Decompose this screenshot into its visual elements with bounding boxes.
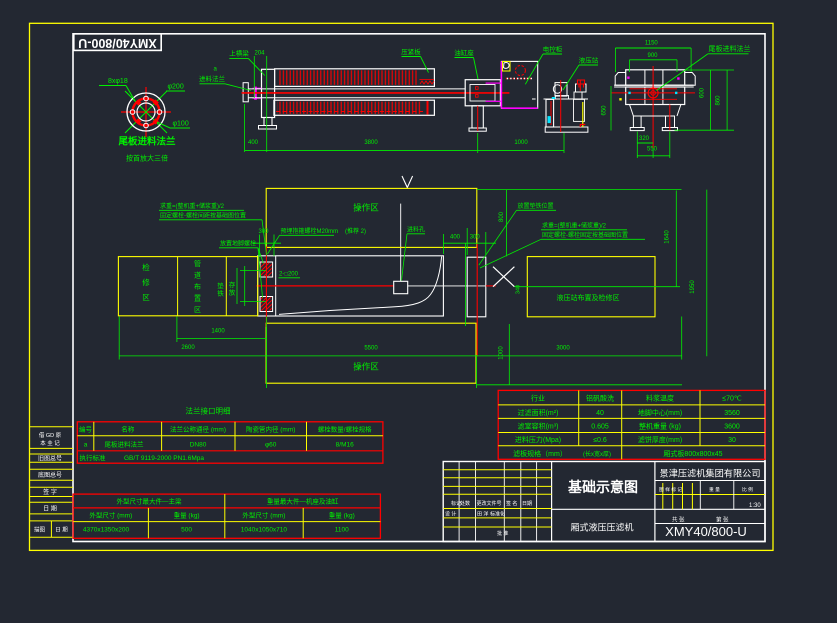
svg-text:压紧板: 压紧板 — [401, 47, 421, 56]
svg-text:500: 500 — [181, 527, 192, 534]
svg-text:更改文件号: 更改文件号 — [477, 500, 502, 507]
svg-text:1950: 1950 — [690, 280, 696, 294]
svg-text:图 样 标 记: 图 样 标 记 — [659, 486, 682, 493]
svg-text:操作区: 操作区 — [353, 362, 379, 372]
svg-text:≤0.6: ≤0.6 — [593, 437, 607, 444]
svg-text:XMY40/800-U: XMY40/800-U — [665, 524, 747, 539]
svg-text:厢式板800x800x45: 厢式板800x800x45 — [663, 449, 722, 458]
svg-text:≤70℃: ≤70℃ — [722, 396, 742, 403]
svg-text:300: 300 — [258, 229, 269, 235]
svg-text:按首放大三倍: 按首放大三倍 — [126, 154, 168, 163]
svg-text:过滤面积(m²): 过滤面积(m²) — [518, 408, 559, 417]
svg-text:液压站: 液压站 — [579, 56, 599, 65]
svg-text:螺栓数量/螺栓规格: 螺栓数量/螺栓规格 — [318, 425, 372, 434]
svg-text:1000: 1000 — [499, 346, 505, 360]
svg-text:DN80: DN80 — [190, 442, 207, 449]
svg-text:重 量: 重 量 — [709, 486, 720, 493]
svg-text:铁: 铁 — [217, 289, 224, 298]
svg-text:基础示意图: 基础示意图 — [568, 479, 638, 495]
svg-text:电控柜: 电控柜 — [543, 45, 563, 54]
svg-text:本 圭 记: 本 圭 记 — [40, 439, 60, 447]
svg-text:重量 (kg): 重量 (kg) — [174, 511, 200, 519]
svg-text:尾板进料法兰: 尾板进料法兰 — [105, 440, 145, 449]
svg-text:1150: 1150 — [645, 41, 659, 47]
svg-text:1400: 1400 — [211, 329, 225, 335]
svg-text:2600: 2600 — [181, 345, 195, 351]
svg-text:尾板进料法兰: 尾板进料法兰 — [117, 136, 176, 148]
svg-text:外型尺寸 (mm): 外型尺寸 (mm) — [89, 510, 132, 519]
svg-text:借 GD 原: 借 GD 原 — [39, 431, 62, 439]
svg-text:40: 40 — [596, 410, 604, 417]
svg-text:放置垫铁位置: 放置垫铁位置 — [518, 202, 554, 210]
svg-text:900: 900 — [647, 53, 658, 59]
svg-text:320: 320 — [639, 136, 650, 142]
svg-text:料浆温度: 料浆温度 — [646, 394, 674, 403]
svg-text:340: 340 — [516, 285, 522, 294]
svg-text:田 洋: 田 洋 — [477, 511, 488, 518]
svg-text:φ200: φ200 — [168, 84, 184, 91]
svg-text:滤饼厚度(mm): 滤饼厚度(mm) — [638, 435, 682, 444]
svg-text:尾板进料法兰: 尾板进料法兰 — [709, 44, 751, 53]
svg-text:日 期: 日 期 — [55, 527, 68, 534]
svg-text:布: 布 — [194, 282, 201, 291]
svg-text:进料压力(Mpa): 进料压力(Mpa) — [515, 435, 561, 444]
svg-text:比 例: 比 例 — [742, 486, 753, 493]
svg-text:存: 存 — [229, 280, 236, 289]
svg-text:检: 检 — [142, 262, 150, 272]
svg-text:地脚中心(mm): 地脚中心(mm) — [638, 408, 682, 417]
svg-text:400: 400 — [450, 235, 461, 241]
svg-text:液压站布置及检修区: 液压站布置及检修区 — [557, 293, 620, 302]
svg-text:处数: 处数 — [460, 500, 470, 507]
svg-text:名称: 名称 — [121, 425, 135, 434]
svg-text:设 计: 设 计 — [445, 511, 456, 518]
svg-text:预埋抱箍螺栓M20mm: 预埋抱箍螺栓M20mm — [281, 227, 339, 235]
svg-text:外型尺寸 (mm): 外型尺寸 (mm) — [242, 510, 285, 519]
svg-text:铝矾酸洗: 铝矾酸洗 — [586, 394, 614, 403]
svg-text:景津压滤机集团有限公司: 景津压滤机集团有限公司 — [659, 468, 760, 479]
svg-text:进料孔: 进料孔 — [407, 226, 425, 234]
svg-text:批 准: 批 准 — [497, 530, 508, 537]
svg-text:日 期: 日 期 — [43, 505, 57, 513]
svg-text:φ60: φ60 — [265, 442, 277, 449]
svg-text:厢式液压压滤机: 厢式液压压滤机 — [570, 522, 633, 533]
svg-text:操作区: 操作区 — [353, 203, 379, 213]
svg-text:a: a — [84, 442, 88, 449]
svg-text:8xφ18: 8xφ18 — [108, 78, 128, 85]
svg-text:法兰接口明细: 法兰接口明细 — [186, 406, 231, 416]
svg-text:行业: 行业 — [531, 394, 545, 403]
svg-text:第 张: 第 张 — [716, 516, 729, 524]
svg-text:(推荐 2): (推荐 2) — [345, 227, 366, 235]
svg-text:XMY40/800-U: XMY40/800-U — [78, 36, 157, 50]
svg-text:旧图总号: 旧图总号 — [38, 455, 62, 463]
svg-text:外型尺寸最大件—主梁: 外型尺寸最大件—主梁 — [117, 497, 183, 506]
svg-text:2-□200: 2-□200 — [279, 272, 299, 278]
svg-text:求重=(整机重+储浆重)/2: 求重=(整机重+储浆重)/2 — [542, 222, 607, 230]
svg-text:3560: 3560 — [724, 410, 740, 417]
svg-text:陶瓷管内径 (mm): 陶瓷管内径 (mm) — [246, 425, 295, 434]
svg-text:执行标准: 执行标准 — [80, 453, 107, 462]
svg-text:550: 550 — [647, 147, 658, 153]
svg-text:固定螺栓-螺栓间距按基础图位置: 固定螺栓-螺栓间距按基础图位置 — [160, 212, 246, 220]
svg-text:300: 300 — [470, 235, 481, 241]
svg-text:日期: 日期 — [522, 501, 532, 507]
svg-text:整机重量 (kg): 整机重量 (kg) — [639, 422, 681, 431]
svg-text:1100: 1100 — [335, 527, 349, 534]
svg-text:区: 区 — [194, 306, 201, 314]
svg-text:垫: 垫 — [217, 281, 224, 290]
svg-text:签 字: 签 字 — [43, 488, 57, 496]
svg-text:固定螺栓-螺栓固定按基础图位置: 固定螺栓-螺栓固定按基础图位置 — [542, 231, 628, 239]
svg-text:600: 600 — [700, 87, 706, 98]
svg-text:860: 860 — [716, 95, 722, 106]
svg-text:底图总号: 底图总号 — [38, 471, 62, 479]
svg-text:GB/T 9119-2000 PN1.6Mpa: GB/T 9119-2000 PN1.6Mpa — [124, 455, 204, 462]
svg-text:650: 650 — [602, 105, 608, 116]
svg-text:描图: 描图 — [34, 526, 46, 534]
svg-text:滤室容积(m³): 滤室容积(m³) — [518, 422, 559, 431]
svg-text:放: 放 — [229, 288, 236, 297]
svg-text:法兰公称通径 (mm): 法兰公称通径 (mm) — [170, 425, 226, 434]
svg-text:1040x1050x710: 1040x1050x710 — [241, 527, 288, 534]
svg-text:0.605: 0.605 — [591, 424, 609, 431]
svg-text:管: 管 — [194, 259, 201, 268]
svg-text:30: 30 — [728, 437, 736, 444]
svg-text:求重=(整机重+储浆重)/2: 求重=(整机重+储浆重)/2 — [160, 202, 225, 210]
svg-text:道: 道 — [194, 271, 201, 280]
svg-text:进料法兰: 进料法兰 — [199, 74, 226, 83]
svg-text:编号: 编号 — [79, 425, 93, 434]
svg-text:重量 (kg): 重量 (kg) — [329, 511, 355, 519]
svg-text:(长x宽x厚): (长x宽x厚) — [583, 450, 611, 458]
svg-text:1000: 1000 — [514, 140, 528, 146]
svg-text:1:30: 1:30 — [749, 503, 761, 509]
svg-text:1640: 1640 — [665, 230, 671, 244]
svg-text:204: 204 — [254, 51, 265, 57]
svg-text:滤板规格（mm）: 滤板规格（mm） — [513, 449, 567, 458]
svg-text:签 名: 签 名 — [506, 500, 517, 507]
svg-text:重量最大件—机座及油缸: 重量最大件—机座及油缸 — [267, 497, 339, 506]
svg-text:3000: 3000 — [556, 346, 570, 352]
svg-text:5500: 5500 — [364, 346, 378, 352]
svg-text:油缸座: 油缸座 — [454, 48, 474, 57]
svg-text:4370x1350x200: 4370x1350x200 — [83, 527, 130, 534]
svg-text:标准化: 标准化 — [490, 511, 505, 518]
svg-text:共 张: 共 张 — [672, 516, 685, 524]
svg-text:放置地脚螺栓: 放置地脚螺栓 — [220, 240, 256, 248]
svg-text:区: 区 — [142, 293, 150, 302]
svg-text:φ100: φ100 — [173, 121, 189, 128]
svg-text:置: 置 — [194, 295, 201, 303]
svg-text:修: 修 — [142, 277, 150, 287]
svg-text:3800: 3800 — [364, 140, 378, 146]
svg-text:800: 800 — [499, 211, 505, 222]
svg-text:上横梁: 上横梁 — [229, 49, 249, 58]
svg-text:400: 400 — [248, 140, 259, 146]
svg-text:8/M16: 8/M16 — [336, 442, 354, 449]
svg-text:3600: 3600 — [724, 424, 740, 431]
